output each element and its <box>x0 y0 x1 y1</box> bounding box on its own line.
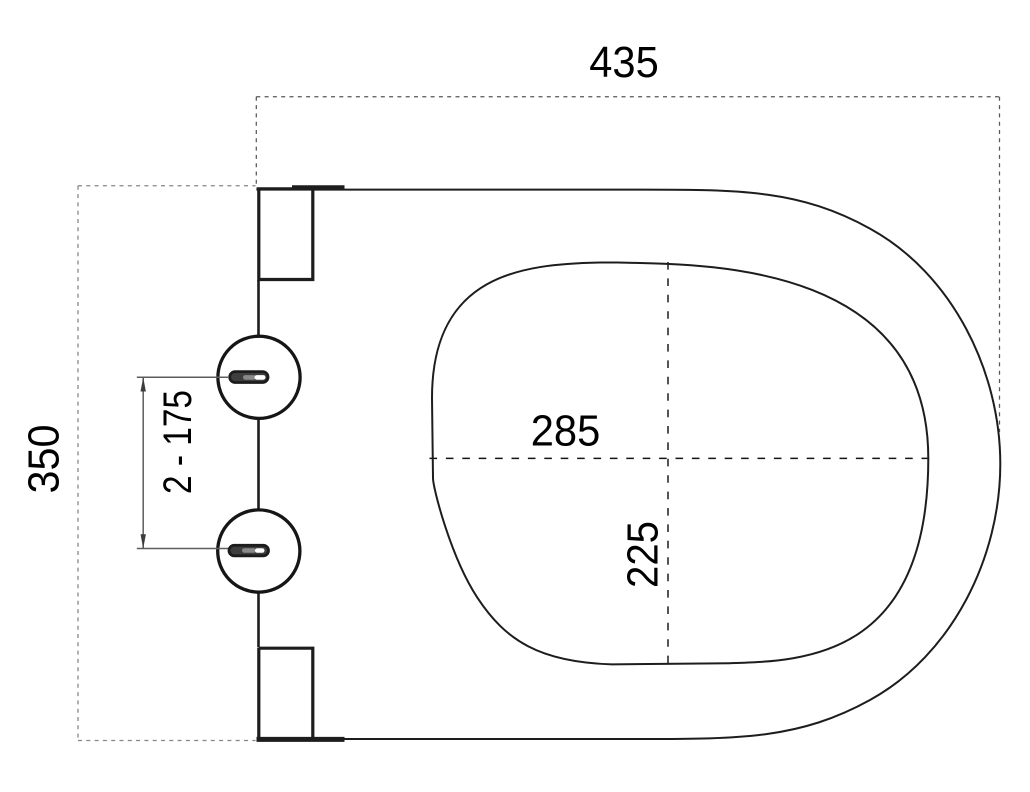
svg-text:350: 350 <box>20 425 69 494</box>
svg-text:225: 225 <box>619 521 668 588</box>
svg-text:285: 285 <box>531 406 601 455</box>
svg-text:435: 435 <box>589 38 659 87</box>
svg-text:2 - 175: 2 - 175 <box>156 390 200 494</box>
